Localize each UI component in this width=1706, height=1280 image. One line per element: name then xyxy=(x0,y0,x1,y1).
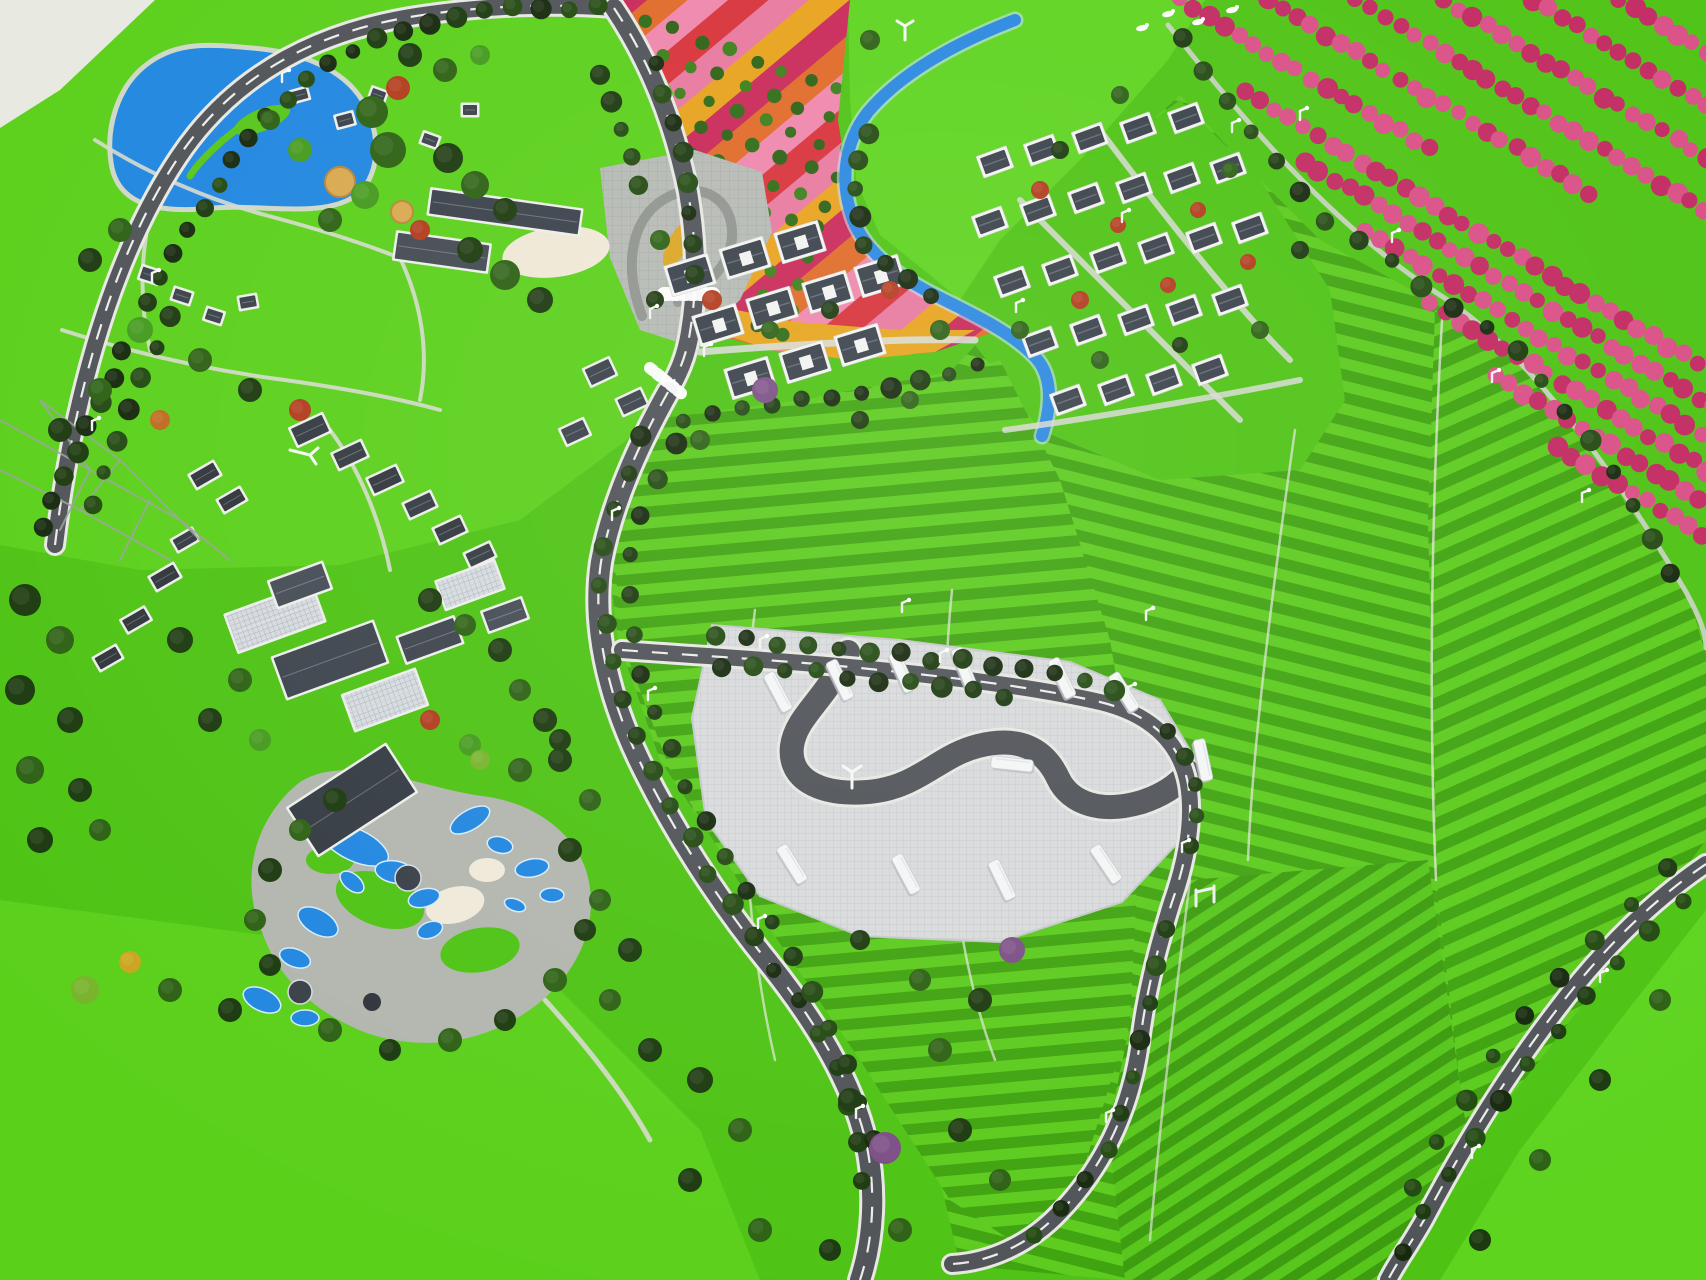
photo-light-sheen xyxy=(0,0,1706,1280)
model-scene-root xyxy=(0,0,1706,1280)
scale-model-aerial-photo xyxy=(0,0,1706,1280)
model-scene-canvas xyxy=(0,0,1706,1280)
